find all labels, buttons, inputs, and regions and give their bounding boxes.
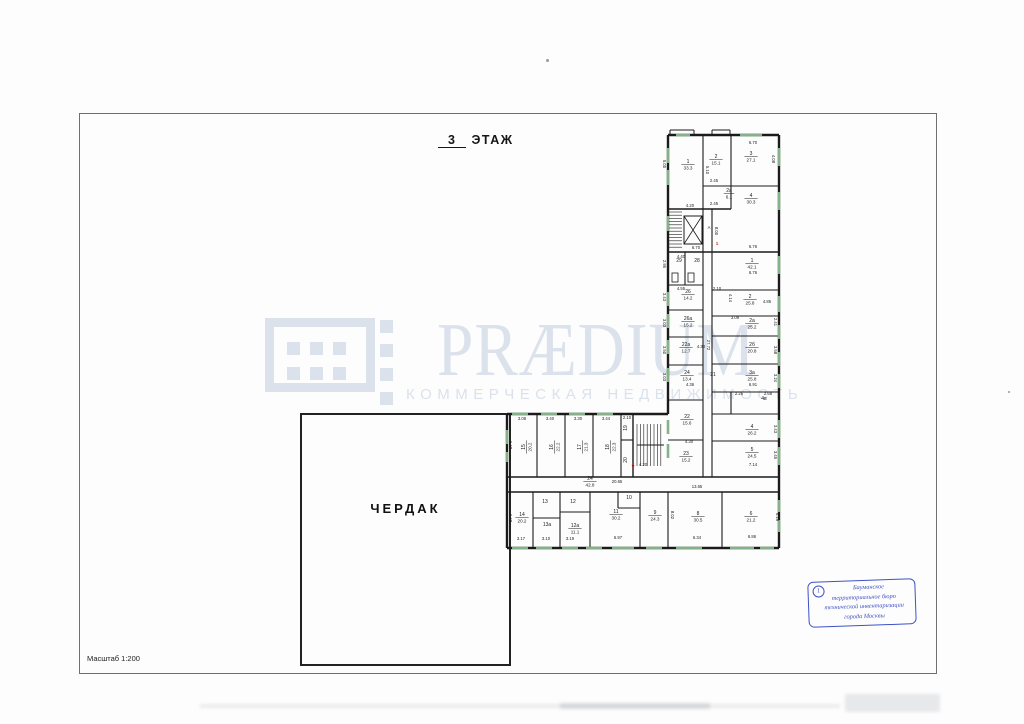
svg-text:24: 24	[587, 476, 593, 482]
scanned-floor-plan-sheet: PRÆDIUM КОММЕРЧЕСКАЯ НЕДВИЖИМОСТЬ 3ЭТАЖ …	[0, 0, 1024, 724]
svg-text:6.76: 6.76	[749, 270, 758, 275]
svg-text:42.8: 42.8	[586, 483, 595, 488]
svg-text:12: 12	[570, 499, 576, 505]
svg-text:15.2: 15.2	[684, 323, 693, 328]
svg-text:9: 9	[654, 510, 657, 516]
svg-text:2.25: 2.25	[735, 391, 744, 396]
svg-text:6.48: 6.48	[508, 514, 513, 523]
svg-text:3: 3	[750, 151, 753, 157]
svg-text:24.5: 24.5	[748, 454, 757, 459]
scan-smudge	[200, 704, 840, 708]
svg-text:2б: 2б	[749, 342, 755, 348]
svg-text:6.70: 6.70	[692, 245, 701, 250]
svg-text:4.85: 4.85	[763, 299, 772, 304]
svg-text:22а: 22а	[682, 342, 691, 348]
svg-text:3.24: 3.24	[773, 374, 778, 383]
svg-text:5.00: 5.00	[662, 160, 667, 169]
svg-text:3.17: 3.17	[517, 536, 526, 541]
svg-text:17: 17	[577, 444, 583, 450]
svg-text:25.2: 25.2	[748, 325, 757, 330]
svg-text:б: б	[632, 462, 635, 468]
svg-text:2.45: 2.45	[710, 178, 719, 183]
svg-text:20.8: 20.8	[748, 349, 757, 354]
svg-text:4.55: 4.55	[677, 286, 686, 291]
svg-text:2.45: 2.45	[710, 201, 719, 206]
svg-text:21.3: 21.3	[584, 442, 589, 451]
svg-text:4: 4	[751, 424, 754, 430]
svg-text:4: 4	[750, 193, 753, 199]
svg-text:24.3: 24.3	[651, 517, 660, 522]
svg-text:12а: 12а	[571, 523, 580, 529]
svg-text:3.43: 3.43	[662, 293, 667, 302]
svg-text:20: 20	[623, 457, 629, 463]
svg-text:3.09: 3.09	[731, 315, 740, 320]
scan-smudge	[845, 694, 940, 712]
svg-text:10: 10	[626, 495, 632, 501]
scan-speck	[1008, 391, 1010, 393]
svg-text:2а: 2а	[726, 188, 732, 194]
svg-text:3.43: 3.43	[773, 425, 778, 434]
svg-text:13.65: 13.65	[692, 484, 703, 489]
svg-text:2: 2	[715, 154, 718, 160]
svg-text:2.68: 2.68	[764, 391, 773, 396]
svg-text:26: 26	[685, 289, 691, 295]
svg-text:27.72: 27.72	[706, 340, 711, 351]
svg-text:4.33: 4.33	[697, 344, 706, 349]
svg-text:13: 13	[542, 499, 548, 505]
svg-text:4.20: 4.20	[686, 203, 695, 208]
scan-speck	[546, 59, 549, 62]
svg-text:2а: 2а	[749, 318, 755, 324]
svg-text:28: 28	[694, 258, 700, 264]
stamp-text: Бауманское территориальное бюро техничес…	[814, 581, 913, 623]
svg-text:20.2: 20.2	[528, 442, 533, 451]
svg-text:7.14: 7.14	[749, 462, 758, 467]
bti-stamp: 1 Бауманское территориальное бюро технич…	[807, 578, 917, 628]
svg-text:20.65: 20.65	[612, 479, 623, 484]
svg-text:3.30: 3.30	[574, 416, 583, 421]
svg-text:3.40: 3.40	[546, 416, 555, 421]
svg-text:6.19: 6.19	[775, 513, 780, 522]
svg-text:14: 14	[519, 512, 525, 518]
svg-text:3.44: 3.44	[602, 416, 611, 421]
svg-text:4.20: 4.20	[639, 462, 648, 467]
svg-text:15: 15	[521, 444, 527, 450]
svg-text:15.6: 15.6	[683, 421, 692, 426]
scan-smudge	[560, 703, 710, 709]
svg-text:2: 2	[749, 294, 752, 300]
svg-text:24: 24	[684, 370, 690, 376]
svg-text:5: 5	[751, 447, 754, 453]
svg-text:12.7: 12.7	[682, 349, 691, 354]
svg-text:3.03: 3.03	[662, 319, 667, 328]
svg-text:26.2: 26.2	[748, 431, 757, 436]
scale-label: Масштаб 1:200	[87, 654, 140, 663]
svg-text:1: 1	[687, 159, 690, 165]
svg-text:5.10: 5.10	[705, 166, 710, 175]
svg-text:3.03: 3.03	[662, 373, 667, 382]
svg-text:4в: 4в	[761, 396, 767, 402]
svg-text:18: 18	[605, 444, 611, 450]
svg-text:8: 8	[697, 511, 700, 517]
svg-text:3.50: 3.50	[662, 346, 667, 355]
svg-text:15.1: 15.1	[712, 161, 721, 166]
svg-text:4.36: 4.36	[686, 382, 695, 387]
svg-text:15.2: 15.2	[682, 458, 691, 463]
svg-text:3.08: 3.08	[518, 416, 527, 421]
svg-text:6.86: 6.86	[748, 534, 757, 539]
svg-text:16: 16	[549, 444, 555, 450]
svg-text:4.14: 4.14	[728, 294, 733, 303]
svg-text:13.4: 13.4	[683, 377, 692, 382]
svg-text:2.10: 2.10	[713, 286, 722, 291]
svg-text:8.00: 8.00	[714, 227, 719, 236]
svg-text:42.1: 42.1	[748, 265, 757, 270]
svg-text:21: 21	[710, 372, 716, 378]
svg-text:3а: 3а	[749, 370, 755, 376]
svg-text:6.48: 6.48	[508, 441, 513, 450]
svg-text:30.3: 30.3	[747, 200, 756, 205]
svg-text:А: А	[708, 225, 711, 230]
svg-text:6: 6	[750, 511, 753, 517]
svg-text:4.40: 4.40	[677, 254, 686, 259]
svg-text:4.08: 4.08	[771, 155, 776, 164]
svg-text:33.3: 33.3	[684, 166, 693, 171]
svg-text:30.2: 30.2	[612, 516, 621, 521]
svg-text:11.1: 11.1	[571, 530, 580, 535]
svg-text:1: 1	[716, 241, 719, 246]
svg-text:25.8: 25.8	[748, 377, 757, 382]
svg-text:20.2: 20.2	[518, 519, 527, 524]
svg-text:25.8: 25.8	[746, 301, 755, 306]
svg-text:22.3: 22.3	[612, 442, 617, 451]
svg-text:27.1: 27.1	[747, 158, 756, 163]
svg-text:19: 19	[623, 425, 629, 431]
svg-text:8.02: 8.02	[670, 511, 675, 520]
svg-text:6.76: 6.76	[749, 244, 758, 249]
svg-text:11: 11	[613, 509, 618, 515]
svg-text:3.58: 3.58	[773, 346, 778, 355]
svg-text:23: 23	[683, 451, 689, 457]
svg-text:3.10: 3.10	[542, 536, 551, 541]
svg-text:22.2: 22.2	[556, 442, 561, 451]
svg-text:2.95: 2.95	[662, 260, 667, 269]
svg-text:6.1: 6.1	[726, 195, 733, 200]
svg-text:6.97: 6.97	[614, 535, 623, 540]
svg-text:6.34: 6.34	[693, 535, 702, 540]
svg-text:3.45: 3.45	[773, 451, 778, 460]
svg-text:2.41: 2.41	[773, 318, 778, 327]
svg-text:2.10: 2.10	[623, 415, 632, 420]
svg-text:3.19: 3.19	[566, 536, 575, 541]
svg-text:1: 1	[751, 258, 754, 264]
svg-text:21.2: 21.2	[747, 518, 756, 523]
svg-text:30.5: 30.5	[694, 518, 703, 523]
svg-text:4.30: 4.30	[685, 439, 694, 444]
svg-text:26а: 26а	[684, 316, 693, 322]
svg-text:6.70: 6.70	[749, 140, 758, 145]
svg-text:14.2: 14.2	[684, 296, 693, 301]
svg-text:22: 22	[684, 414, 690, 420]
svg-text:13а: 13а	[543, 522, 552, 528]
svg-text:6.91: 6.91	[749, 382, 758, 387]
